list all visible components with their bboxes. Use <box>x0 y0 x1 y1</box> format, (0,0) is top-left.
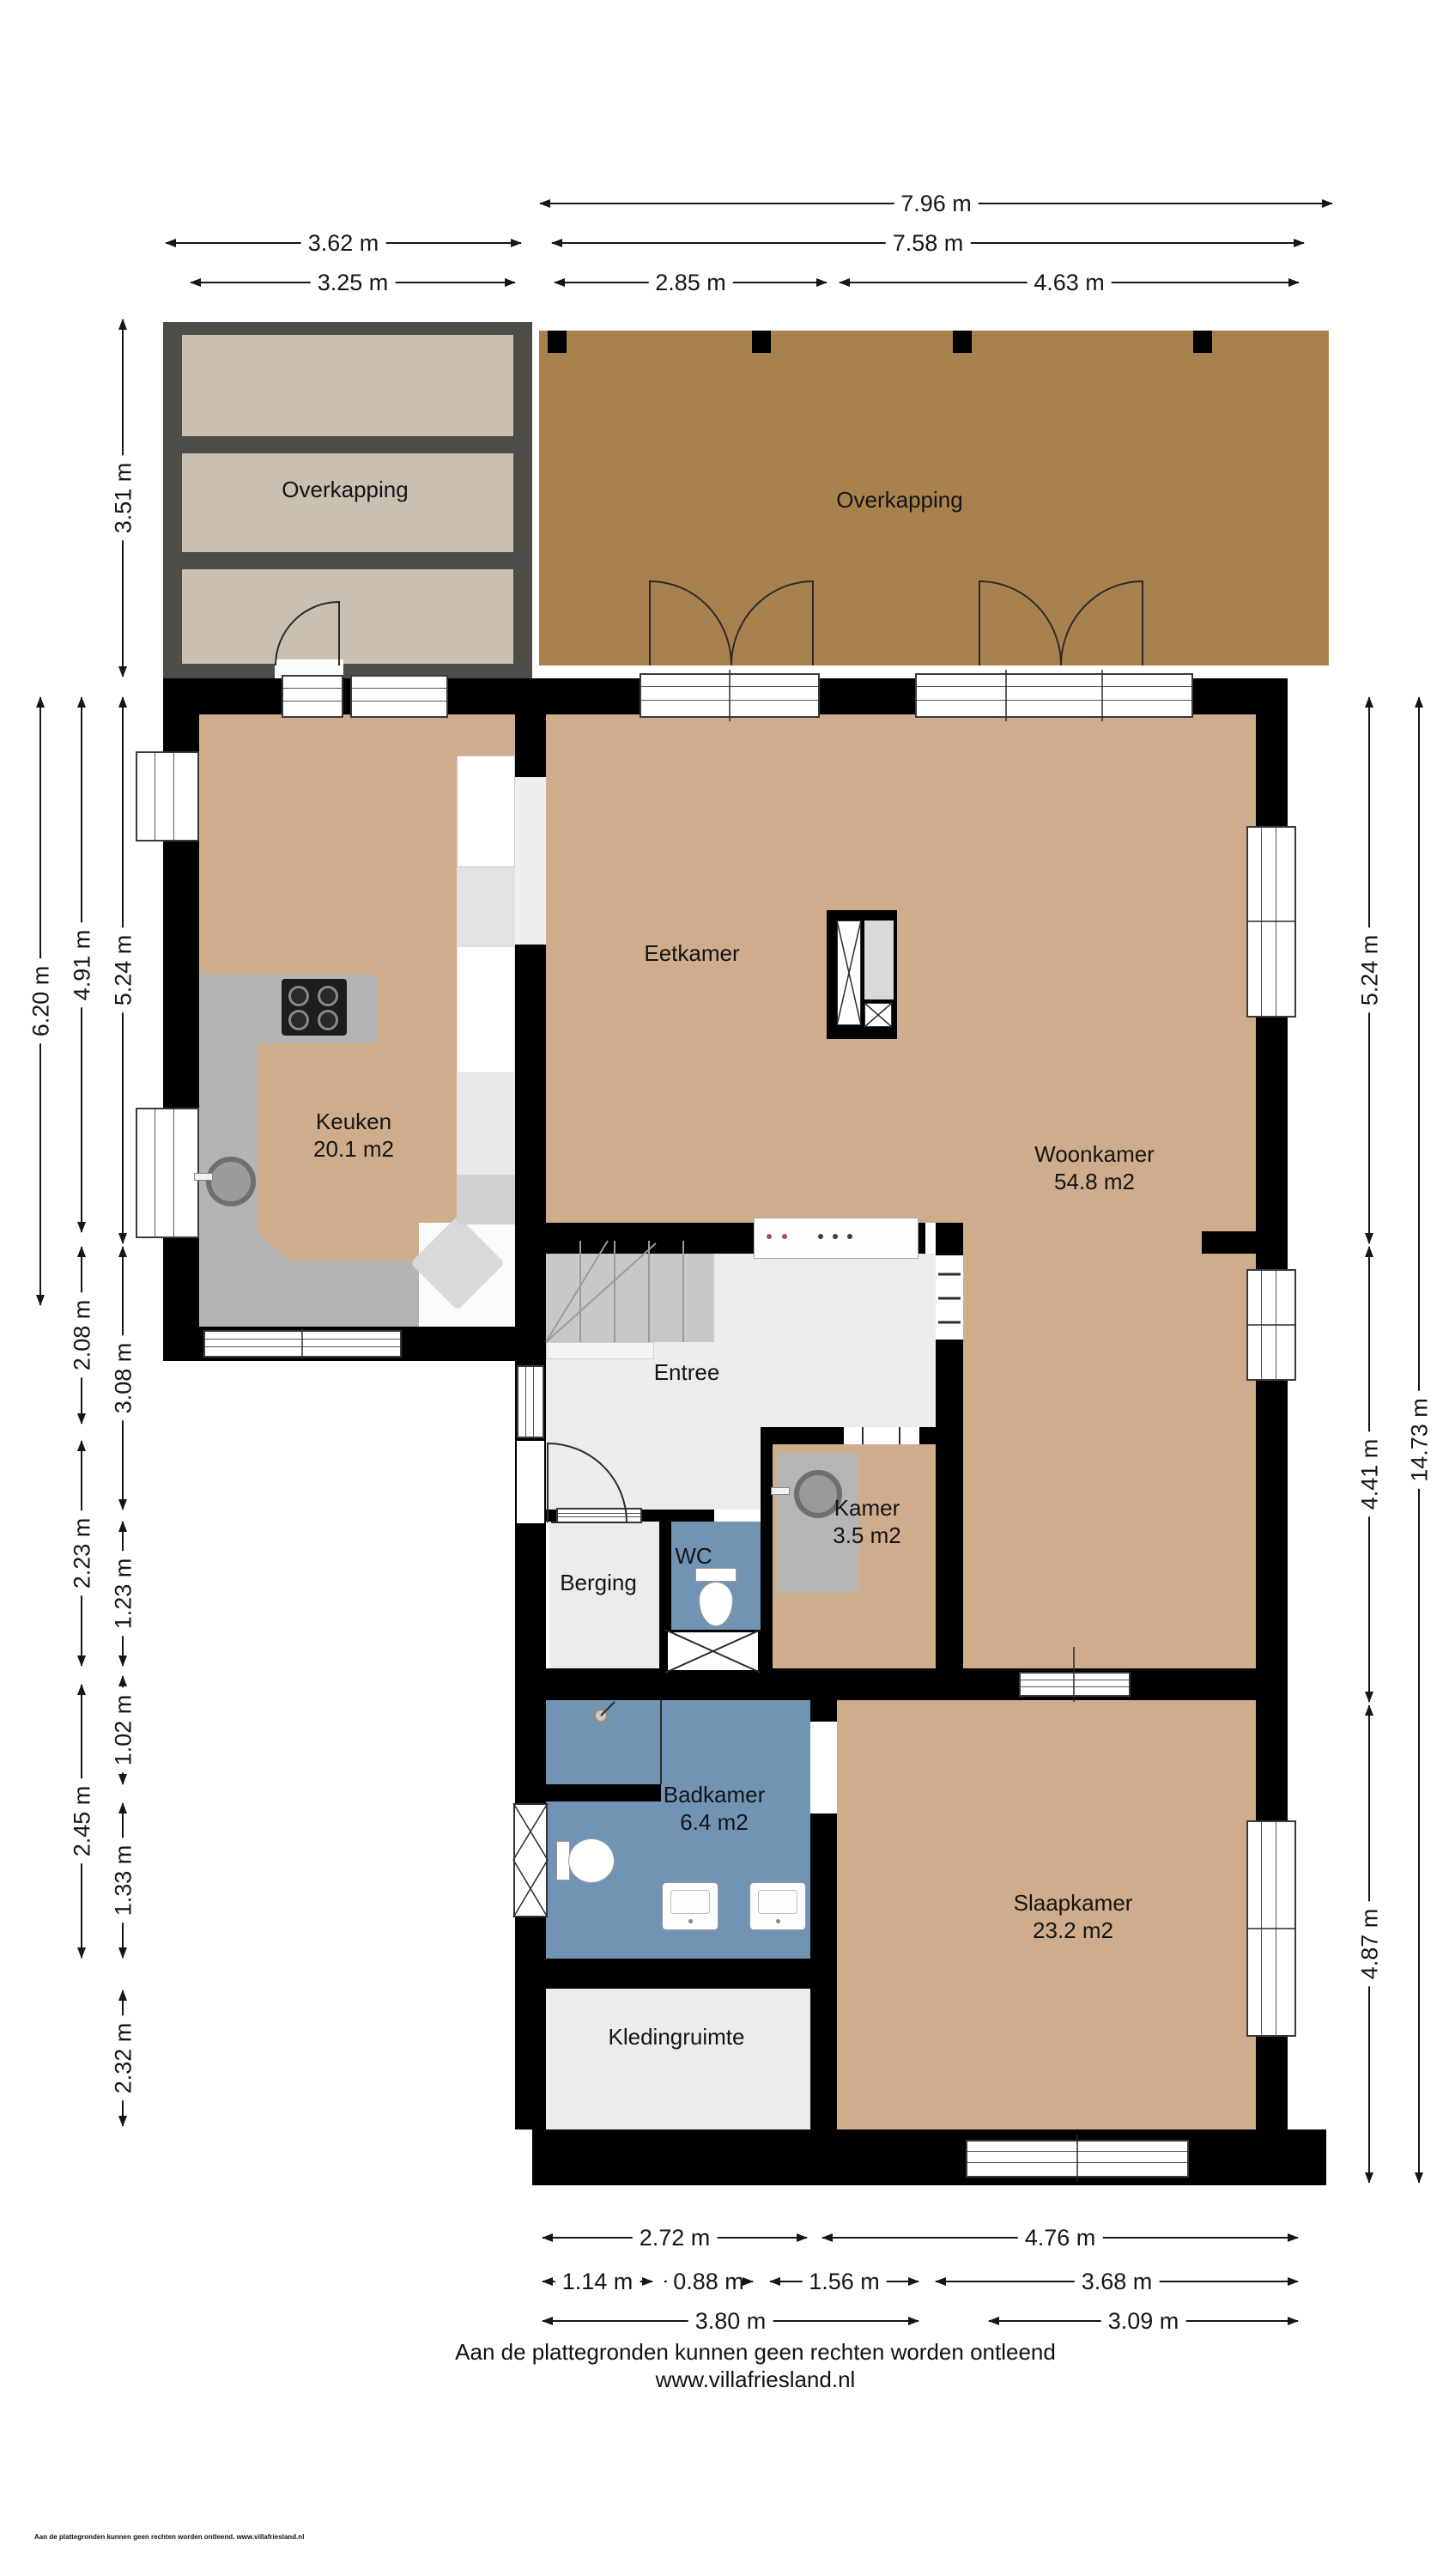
dimension-0.88-m: 0.88 m <box>664 2281 753 2282</box>
badkamer-sink <box>662 1882 718 1930</box>
woonkamer-window-east-1 <box>1246 826 1296 1018</box>
woonkamer-floor-lower <box>963 1223 1256 1668</box>
dimension-4.41-m: 4.41 m <box>1368 1247 1370 1702</box>
entree-sidelight <box>517 1365 544 1438</box>
floorplan-canvas: OverkappingOverkappingEetkamerKeuken20.1… <box>0 0 1449 2576</box>
door-threshold-north <box>282 675 343 718</box>
woonkamer-doors <box>915 673 1193 718</box>
stairs <box>546 1241 714 1342</box>
dimension-4.76-m: 4.76 m <box>822 2237 1298 2239</box>
dimension-3.51-m: 3.51 m <box>122 319 124 677</box>
chimney-cabinet <box>864 920 894 999</box>
dimension-label: 3.80 m <box>688 2308 773 2335</box>
dimension-label: 5.24 m <box>111 928 137 1013</box>
room-label-overkapping-right: Overkapping <box>836 486 962 513</box>
chimney-small-box <box>864 1003 892 1027</box>
overkapping-left-panel <box>182 569 513 664</box>
room-label-woonkamer: Woonkamer54.8 m2 <box>1034 1140 1155 1195</box>
keuken-serving-opening <box>515 777 546 945</box>
dimension-label: 3.25 m <box>311 270 396 296</box>
dimension-3.68-m: 3.68 m <box>936 2281 1298 2282</box>
badkamer-toilet-bowl <box>568 1838 615 1883</box>
room-label-slaapkamer: Slaapkamer23.2 m2 <box>1014 1889 1133 1944</box>
room-label-line: Kledingruimte <box>609 2023 745 2050</box>
dimension-4.91-m: 4.91 m <box>81 697 82 1232</box>
overkapping-post <box>1193 331 1212 353</box>
room-label-badkamer: Badkamer6.4 m2 <box>664 1781 766 1836</box>
room-label-line: Keuken <box>313 1108 394 1135</box>
dimension-label: 1.56 m <box>802 2269 887 2295</box>
dimension-2.45-m: 2.45 m <box>81 1685 82 1958</box>
keuken-cabinet <box>457 1175 515 1224</box>
room-label-overkapping-left: Overkapping <box>282 476 408 503</box>
hatch-box <box>665 1630 761 1673</box>
dimension-1.14-m: 1.14 m <box>543 2281 652 2282</box>
dimension-label: 2.08 m <box>70 1293 96 1378</box>
dimension-3.09-m: 3.09 m <box>989 2320 1298 2322</box>
dimension-2.08-m: 2.08 m <box>81 1247 82 1424</box>
dimension-label: 7.58 m <box>886 230 971 257</box>
room-label-line: Overkapping <box>282 476 408 503</box>
footer-disclaimer: Aan de plattegronden kunnen geen rechten… <box>455 2339 1056 2366</box>
dimension-label: 4.41 m <box>1357 1432 1384 1517</box>
dimension-2.72-m: 2.72 m <box>543 2237 807 2239</box>
room-label-entree: Entree <box>654 1358 720 1386</box>
shower-head <box>592 1707 609 1724</box>
slaapkamer-window-north <box>1019 1672 1131 1697</box>
dimension-label: 4.63 m <box>1027 270 1112 296</box>
dimension-label: 2.23 m <box>70 1511 96 1596</box>
keuken-cabinet <box>457 946 515 1073</box>
overkapping-left-panel <box>182 335 513 436</box>
dimension-label: 6.20 m <box>28 959 55 1044</box>
dimension-3.80-m: 3.80 m <box>543 2320 919 2322</box>
room-label-line: WC <box>675 1542 712 1570</box>
dimension-4.63-m: 4.63 m <box>840 282 1299 283</box>
room-label-kamer: Kamer3.5 m2 <box>833 1494 901 1549</box>
overkapping-post <box>953 331 972 353</box>
room-label-keuken: Keuken20.1 m2 <box>313 1108 394 1163</box>
keuken-cabinet <box>457 756 515 867</box>
dimension-label: 4.91 m <box>70 922 96 1007</box>
room-label-line: Entree <box>654 1358 720 1386</box>
dimension-label: 1.33 m <box>111 1838 137 1923</box>
dimension-label: 1.14 m <box>555 2269 640 2295</box>
dimension-6.20-m: 6.20 m <box>39 697 41 1305</box>
badkamer-door-gap <box>810 1722 837 1814</box>
kamer-opening <box>844 1427 919 1444</box>
room-label-line: 6.4 m2 <box>664 1808 766 1836</box>
dimension-7.96-m: 7.96 m <box>540 203 1332 204</box>
dimension-2.23-m: 2.23 m <box>81 1441 82 1666</box>
room-label-line: Eetkamer <box>644 939 739 967</box>
room-label-line: 54.8 m2 <box>1034 1168 1155 1195</box>
woonkamer-window-east-2 <box>1246 1269 1296 1381</box>
dimension-label: 3.62 m <box>301 230 386 257</box>
woonkamer-dashed-opening <box>936 1255 963 1340</box>
room-label-berging: Berging <box>560 1569 637 1596</box>
badkamer-window-west <box>513 1803 548 1917</box>
overkapping-post <box>752 331 771 353</box>
dimension-label: 3.08 m <box>111 1336 137 1421</box>
dimension-2.85-m: 2.85 m <box>555 282 827 283</box>
dimension-label: 2.45 m <box>70 1779 96 1864</box>
dimension-3.08-m: 3.08 m <box>122 1247 124 1510</box>
wc-toilet-tank <box>695 1568 737 1582</box>
dimension-5.24-m: 5.24 m <box>1368 697 1370 1243</box>
dimension-1.56-m: 1.56 m <box>770 2281 919 2282</box>
keuken-cabinet <box>457 1073 515 1175</box>
wall-badkamer-south <box>515 1959 837 1989</box>
keuken-window-west-1 <box>136 751 199 841</box>
dimension-label: 1.23 m <box>111 1552 137 1637</box>
dimension-1.02-m: 1.02 m <box>122 1676 124 1784</box>
dimension-3.25-m: 3.25 m <box>191 282 515 283</box>
wall-south <box>532 2129 1326 2185</box>
dimension-label: 14.73 m <box>1407 1391 1434 1489</box>
dimension-label: 2.72 m <box>633 2225 718 2251</box>
room-label-line: Kamer <box>833 1494 901 1522</box>
wall-kamer-west <box>761 1444 773 1668</box>
overkapping-post <box>548 331 567 353</box>
room-label-line: 23.2 m2 <box>1014 1917 1133 1944</box>
keuken-cabinet <box>457 867 515 946</box>
room-label-line: Slaapkamer <box>1014 1889 1133 1917</box>
dimension-5.24-m: 5.24 m <box>122 697 124 1243</box>
dimension-1.23-m: 1.23 m <box>122 1522 124 1666</box>
dimension-1.33-m: 1.33 m <box>122 1803 124 1958</box>
dimension-label: 0.88 m <box>666 2269 751 2295</box>
dimension-label: 2.32 m <box>111 2016 137 2101</box>
dimension-3.62-m: 3.62 m <box>166 242 521 244</box>
dimension-label: 3.09 m <box>1101 2308 1186 2335</box>
entree-floor-lower <box>546 1427 761 1510</box>
slaapkamer-window-south <box>966 2140 1189 2178</box>
stairs-landing <box>546 1342 654 1359</box>
keuken-faucet <box>194 1173 213 1181</box>
kledingruimte-floor <box>546 1989 810 2129</box>
wall-kleding-east <box>810 1989 837 2129</box>
dimension-label: 4.76 m <box>1018 2225 1103 2251</box>
dresser <box>754 1218 919 1259</box>
footer-website: www.villafriesland.nl <box>656 2366 856 2393</box>
dimension-label: 3.68 m <box>1075 2269 1160 2295</box>
wall-badkamer-north <box>515 1668 837 1700</box>
dimension-label: 4.87 m <box>1357 1902 1384 1987</box>
front-door-gap <box>517 1441 544 1523</box>
slaapkamer-window-east <box>1246 1820 1296 2037</box>
dimension-label: 7.96 m <box>894 191 979 217</box>
dimension-label: 1.02 m <box>111 1688 137 1773</box>
keuken-window-west-2 <box>136 1108 199 1238</box>
dimension-2.32-m: 2.32 m <box>122 1990 124 2126</box>
room-label-wc: WC <box>675 1542 712 1570</box>
corner-note: Aan de plattegronden kunnen geen rechten… <box>34 2533 304 2541</box>
badkamer-sink <box>749 1882 806 1930</box>
room-label-line: 3.5 m2 <box>833 1522 901 1549</box>
chimney-flue-panel <box>837 920 861 1025</box>
dimension-label: 2.85 m <box>648 270 733 296</box>
dimension-label: 5.24 m <box>1357 928 1384 1013</box>
berging-window <box>556 1508 642 1523</box>
room-label-eetkamer: Eetkamer <box>644 939 739 967</box>
keuken-window-north <box>350 675 448 718</box>
wall-stub-east <box>1202 1231 1256 1254</box>
room-label-line: Badkamer <box>664 1781 766 1808</box>
dimension-14.73-m: 14.73 m <box>1418 697 1420 2183</box>
dimension-4.87-m: 4.87 m <box>1368 1705 1370 2183</box>
keuken-window-south <box>203 1330 402 1358</box>
room-label-line: Overkapping <box>836 486 962 513</box>
room-label-line: 20.1 m2 <box>313 1135 394 1163</box>
kamer-faucet <box>771 1487 790 1495</box>
cooktop <box>282 979 347 1036</box>
room-label-line: Woonkamer <box>1034 1140 1155 1168</box>
wc-door-gap <box>714 1510 761 1522</box>
keuken-sink <box>206 1157 256 1206</box>
dimension-7.58-m: 7.58 m <box>552 242 1304 244</box>
room-label-line: Berging <box>560 1569 637 1596</box>
eetkamer-doors <box>640 673 820 718</box>
dimension-label: 3.51 m <box>111 456 137 541</box>
wall-badkamer-inner <box>546 1784 661 1801</box>
room-label-kledingruimte: Kledingruimte <box>609 2023 745 2050</box>
